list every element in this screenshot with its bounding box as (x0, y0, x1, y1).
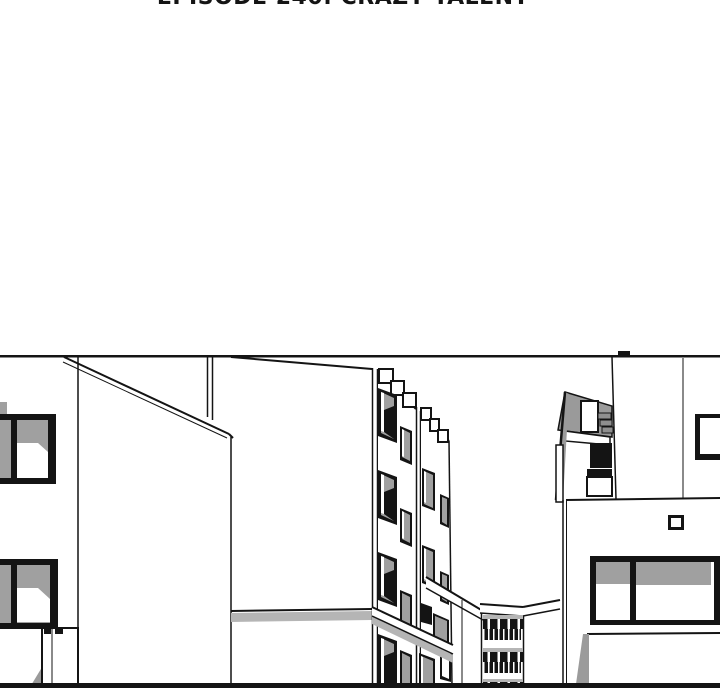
panel-border-top (0, 355, 720, 358)
left-building-window-upper (0, 402, 56, 484)
left-building-window-lower (0, 559, 58, 629)
small-square-window (668, 515, 684, 530)
sky (0, 350, 720, 700)
upper-corner-window (695, 414, 720, 460)
panel-border-bottom (0, 683, 720, 688)
balcony-floor-1 (483, 615, 523, 640)
storefront-window (590, 556, 720, 625)
street-scene-panel (0, 350, 720, 700)
episode-title: EPISODE 240: CRAZY TALENT (0, 0, 686, 10)
balcony-floor-2 (483, 648, 523, 673)
